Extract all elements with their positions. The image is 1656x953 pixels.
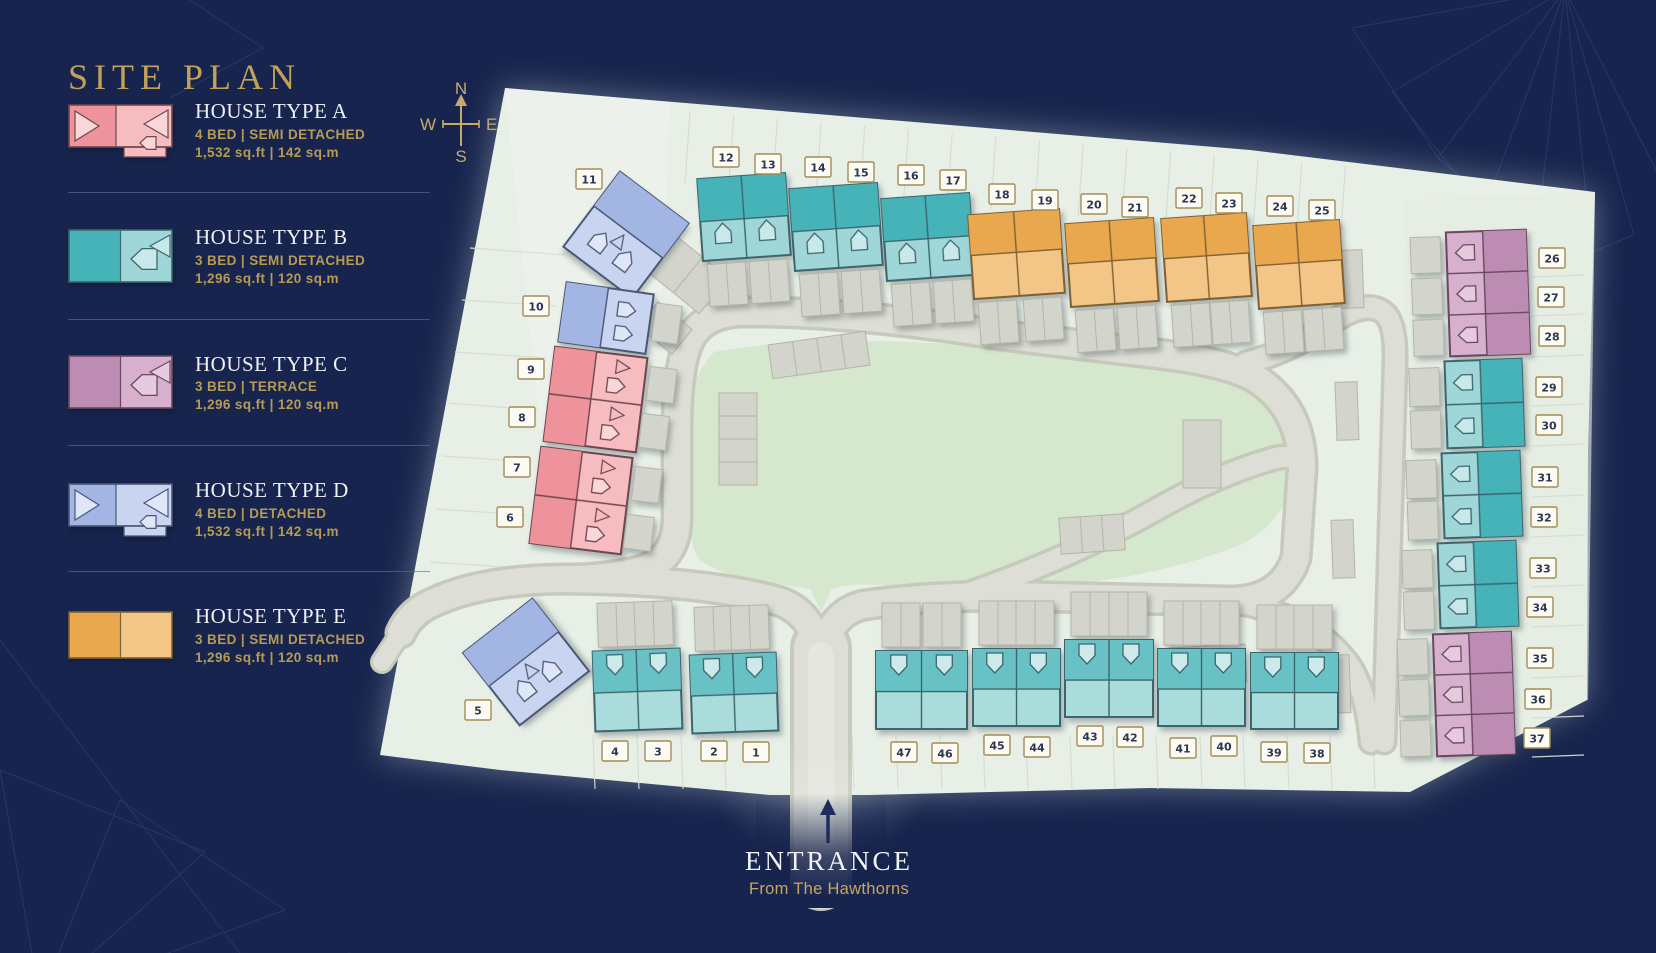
legend-divider [68, 192, 430, 193]
house-type-area: 1,296 sq.ft | 120 sq.m [195, 396, 348, 414]
page-title: SITE PLAN [68, 56, 430, 98]
plot-label-3[interactable]: 3 [645, 741, 671, 761]
house-type-area: 1,532 sq.ft | 142 sq.m [195, 144, 365, 162]
garage-block [979, 601, 1054, 645]
svg-text:43: 43 [1082, 731, 1097, 744]
svg-text:20: 20 [1086, 199, 1102, 212]
house-type-area: 1,532 sq.ft | 142 sq.m [195, 523, 349, 541]
house-type-title: HOUSE TYPE B [195, 224, 365, 252]
svg-text:17: 17 [945, 175, 960, 188]
svg-text:24: 24 [1272, 201, 1288, 214]
building-plots-26-27-28[interactable] [1410, 230, 1530, 358]
svg-text:11: 11 [581, 174, 596, 187]
svg-text:44: 44 [1029, 742, 1045, 755]
plot-label-27[interactable]: 27 [1538, 287, 1564, 307]
plot-label-42[interactable]: 42 [1117, 727, 1143, 747]
plot-label-32[interactable]: 32 [1531, 507, 1557, 527]
svg-text:7: 7 [513, 462, 521, 475]
svg-text:39: 39 [1266, 747, 1281, 760]
legend-item-house-type-a: HOUSE TYPE A 4 BED | SEMI DETACHED 1,532… [68, 98, 430, 161]
plot-label-2[interactable]: 2 [701, 741, 727, 761]
plot-label-45[interactable]: 45 [984, 735, 1010, 755]
house-type-title: HOUSE TYPE A [195, 98, 365, 126]
plot-label-10[interactable]: 10 [523, 296, 549, 316]
plot-label-25[interactable]: 25 [1309, 200, 1335, 220]
plot-label-7[interactable]: 7 [504, 457, 530, 477]
house-type-e-swatch-icon [68, 606, 173, 664]
plot-label-18[interactable]: 18 [989, 184, 1015, 204]
plot-label-16[interactable]: 16 [898, 165, 924, 185]
garage-block [694, 605, 769, 652]
plot-label-26[interactable]: 26 [1539, 248, 1565, 268]
parking-strip [1059, 514, 1125, 554]
building-plots-4-3[interactable] [591, 601, 682, 732]
plot-label-24[interactable]: 24 [1267, 196, 1293, 216]
garage-block [1171, 300, 1251, 347]
plot-label-38[interactable]: 38 [1304, 743, 1330, 763]
house-type-spec: 3 BED | SEMI DETACHED [195, 631, 365, 649]
plot-label-4[interactable]: 4 [602, 741, 628, 761]
garage-block [651, 303, 682, 344]
svg-text:22: 22 [1181, 193, 1196, 206]
house-type-title: HOUSE TYPE C [195, 351, 348, 379]
svg-text:25: 25 [1314, 205, 1329, 218]
svg-text:16: 16 [903, 170, 919, 183]
building-plots-43-42[interactable] [1065, 592, 1153, 717]
compass-n: N [455, 79, 467, 98]
plot-label-11[interactable]: 11 [576, 169, 602, 189]
building-plots-35-36-37[interactable] [1397, 632, 1515, 758]
compass-icon: N S W E [420, 79, 497, 166]
parking-strip [1183, 420, 1221, 488]
svg-text:32: 32 [1536, 512, 1551, 525]
house-type-d-swatch-icon [68, 480, 173, 538]
plot-label-33[interactable]: 33 [1530, 558, 1556, 578]
svg-text:19: 19 [1037, 195, 1052, 208]
house-type-spec: 3 BED | SEMI DETACHED [195, 252, 365, 270]
svg-text:28: 28 [1544, 331, 1559, 344]
svg-text:35: 35 [1532, 653, 1547, 666]
building-plots-14-15[interactable] [789, 183, 886, 317]
svg-text:5: 5 [474, 705, 482, 718]
plot-label-30[interactable]: 30 [1536, 415, 1562, 435]
svg-text:45: 45 [989, 740, 1004, 753]
svg-text:33: 33 [1535, 563, 1550, 576]
garage-block [1164, 601, 1239, 645]
entrance-subtitle: From The Hawthorns [745, 880, 913, 899]
plot-label-46[interactable]: 46 [932, 743, 958, 763]
legend-item-house-type-d: HOUSE TYPE D 4 BED | DETACHED 1,532 sq.f… [68, 477, 430, 540]
svg-text:6: 6 [506, 512, 514, 525]
parking-strip [1331, 520, 1355, 579]
plot-label-41[interactable]: 41 [1170, 738, 1196, 758]
legend-divider [68, 571, 430, 572]
svg-text:42: 42 [1122, 732, 1137, 745]
building-plots-29-30[interactable] [1409, 359, 1525, 450]
legend-item-house-type-e: HOUSE TYPE E 3 BED | SEMI DETACHED 1,296… [68, 603, 430, 666]
garage-block [1071, 592, 1147, 636]
house-type-a-swatch-icon [68, 101, 173, 159]
garage-block [1257, 605, 1332, 649]
svg-text:21: 21 [1127, 202, 1142, 215]
building-plots-24-25[interactable] [1253, 220, 1348, 355]
svg-text:31: 31 [1537, 472, 1552, 485]
svg-text:40: 40 [1216, 741, 1232, 754]
building-plots-31-32[interactable] [1406, 451, 1523, 540]
plot-label-8[interactable]: 8 [509, 407, 535, 427]
plot-label-44[interactable]: 44 [1024, 737, 1050, 757]
plot-label-14[interactable]: 14 [805, 157, 831, 177]
plot-label-9[interactable]: 9 [518, 359, 544, 379]
site-plan-page: 1234567891011121314151617181920212223242… [0, 0, 1656, 953]
parking-strip [719, 393, 757, 485]
legend: SITE PLAN HOUSE TYPE A 4 BED | SEMI DETA… [68, 56, 430, 667]
svg-text:15: 15 [853, 167, 868, 180]
house-type-title: HOUSE TYPE D [195, 477, 349, 505]
plot-label-31[interactable]: 31 [1532, 467, 1558, 487]
plot-label-5[interactable]: 5 [465, 700, 491, 720]
legend-item-house-type-b: HOUSE TYPE B 3 BED | SEMI DETACHED 1,296… [68, 224, 430, 287]
svg-text:29: 29 [1541, 382, 1556, 395]
legend-divider [68, 445, 430, 446]
svg-text:36: 36 [1530, 694, 1546, 707]
svg-text:30: 30 [1541, 420, 1557, 433]
svg-text:46: 46 [937, 748, 953, 761]
building-plots-18-19[interactable] [968, 209, 1068, 345]
svg-text:37: 37 [1529, 733, 1544, 746]
plot-label-36[interactable]: 36 [1525, 689, 1551, 709]
plot-label-13[interactable]: 13 [755, 154, 781, 174]
house-type-spec: 4 BED | DETACHED [195, 505, 349, 523]
svg-text:34: 34 [1532, 602, 1548, 615]
garage-block [1410, 237, 1444, 357]
house-type-title: HOUSE TYPE E [195, 603, 365, 631]
plot-label-23[interactable]: 23 [1216, 193, 1242, 213]
plot-label-40[interactable]: 40 [1211, 736, 1237, 756]
svg-text:38: 38 [1309, 748, 1324, 761]
plot-label-43[interactable]: 43 [1077, 726, 1103, 746]
building-plots-16-17[interactable] [881, 193, 978, 327]
house-type-area: 1,296 sq.ft | 120 sq.m [195, 649, 365, 667]
house-type-spec: 4 BED | SEMI DETACHED [195, 126, 365, 144]
house-type-b-swatch-icon [68, 227, 173, 285]
svg-text:8: 8 [518, 412, 526, 425]
svg-text:14: 14 [810, 162, 826, 175]
garage-block [1397, 639, 1431, 757]
plot-label-19[interactable]: 19 [1032, 190, 1058, 210]
svg-text:23: 23 [1221, 198, 1236, 211]
legend-divider [68, 319, 430, 320]
plot-label-17[interactable]: 17 [940, 170, 966, 190]
building-plots-33-34[interactable] [1402, 541, 1519, 630]
building-plots-12-13[interactable] [697, 173, 794, 307]
building-plots-20-21[interactable] [1065, 218, 1162, 353]
svg-text:41: 41 [1175, 743, 1190, 756]
plot-label-6[interactable]: 6 [497, 507, 523, 527]
svg-text:9: 9 [527, 364, 535, 377]
svg-text:26: 26 [1544, 253, 1560, 266]
compass-e: E [486, 115, 497, 134]
plot-label-34[interactable]: 34 [1527, 597, 1553, 617]
svg-text:3: 3 [654, 746, 662, 759]
plot-label-28[interactable]: 28 [1539, 326, 1565, 346]
plot-label-15[interactable]: 15 [848, 162, 874, 182]
svg-text:10: 10 [528, 301, 544, 314]
legend-item-house-type-c: HOUSE TYPE C 3 BED | TERRACE 1,296 sq.ft… [68, 351, 430, 414]
svg-text:27: 27 [1543, 292, 1558, 305]
plot-label-29[interactable]: 29 [1536, 377, 1562, 397]
svg-text:18: 18 [994, 189, 1009, 202]
plot-label-35[interactable]: 35 [1527, 648, 1553, 668]
house-type-area: 1,296 sq.ft | 120 sq.m [195, 270, 365, 288]
building-plots-2-1[interactable] [688, 605, 778, 734]
building-plots-22-23[interactable] [1161, 213, 1255, 348]
svg-text:4: 4 [611, 746, 619, 759]
svg-text:47: 47 [896, 747, 911, 760]
plot-label-37[interactable]: 37 [1524, 728, 1550, 748]
entrance-caption: ENTRANCE From The Hawthorns [745, 846, 913, 899]
svg-text:2: 2 [710, 746, 718, 759]
plot-label-39[interactable]: 39 [1261, 742, 1287, 762]
plot-label-20[interactable]: 20 [1081, 194, 1107, 214]
plot-label-21[interactable]: 21 [1122, 197, 1148, 217]
entrance-title: ENTRANCE [745, 846, 913, 877]
building-plots-41-40[interactable] [1158, 601, 1245, 726]
house-type-spec: 3 BED | TERRACE [195, 378, 348, 396]
svg-text:13: 13 [760, 159, 775, 172]
garage-block [597, 601, 673, 648]
building-plots-39-38[interactable] [1251, 605, 1338, 729]
house-type-c-swatch-icon [68, 353, 173, 411]
building-plots-45-44[interactable] [973, 601, 1060, 726]
svg-text:12: 12 [718, 152, 733, 165]
parking-strip [1335, 382, 1359, 441]
plot-label-22[interactable]: 22 [1176, 188, 1202, 208]
compass-s: S [455, 147, 466, 166]
plot-label-12[interactable]: 12 [713, 147, 739, 167]
